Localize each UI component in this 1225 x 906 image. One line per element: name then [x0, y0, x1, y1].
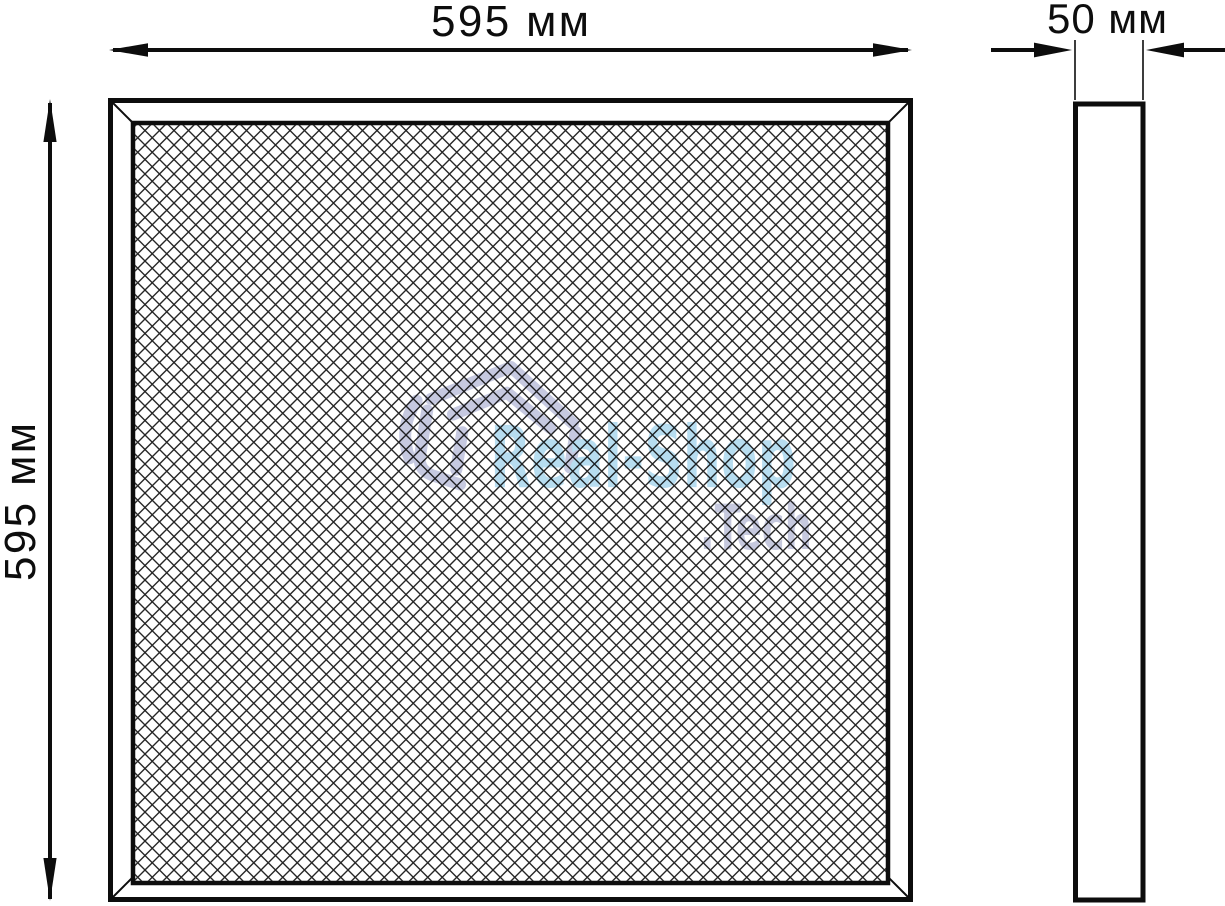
height-dimension-label: 595 мм	[0, 423, 45, 581]
side-view-body	[1076, 104, 1144, 900]
width-dimension-label: 595 мм	[431, 0, 589, 46]
height-dim-arrow-up-icon	[43, 99, 56, 142]
depth-dim-arrow-right-icon	[1034, 43, 1072, 58]
width-dim-arrow-right-icon	[873, 43, 912, 57]
depth-dimension-label: 50 мм	[1047, 0, 1167, 42]
width-dim-arrow-left-icon	[109, 43, 148, 57]
width-dimension: 595 мм	[109, 0, 912, 57]
panel-technical-drawing: Real-Shop .Tech 595 мм 595 мм	[0, 0, 1225, 906]
side-view	[1075, 40, 1143, 900]
watermark-suffix-text: .Tech	[700, 491, 812, 564]
height-dimension: 595 мм	[0, 99, 57, 901]
depth-dimension: 50 мм	[991, 0, 1225, 57]
front-view: Real-Shop .Tech	[110, 100, 911, 900]
panel-dimension-drawing-page: Real-Shop .Tech 595 мм 595 мм	[0, 0, 1225, 906]
depth-dim-arrow-left-icon	[1146, 43, 1184, 58]
height-dim-arrow-down-icon	[43, 858, 56, 901]
